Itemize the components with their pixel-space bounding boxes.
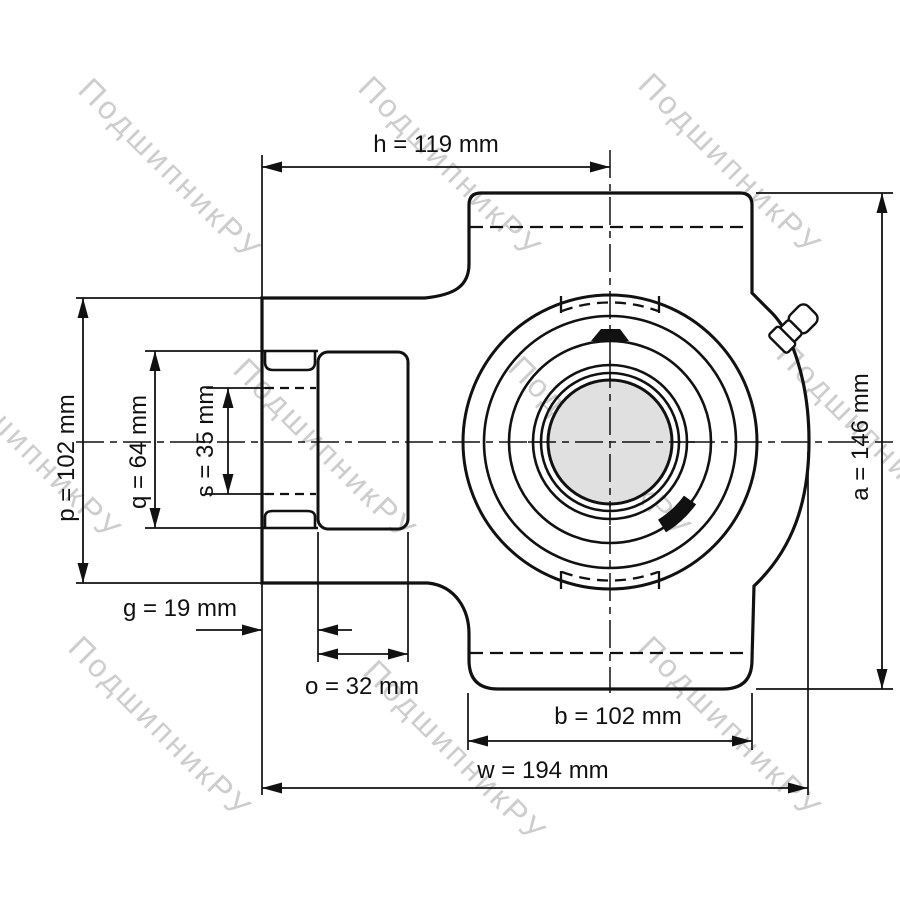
dim-label-b: b = 102 mm (554, 703, 681, 730)
locating-slot-detail (591, 329, 629, 341)
dim-label-p: p = 102 mm (53, 394, 80, 521)
dim-label-s: s = 35 mm (192, 385, 219, 498)
dim-label-o: o = 32 mm (305, 673, 419, 700)
lower-step-notch (265, 511, 315, 528)
set-screw-detail (662, 500, 690, 526)
grease-fitting-icon (768, 301, 821, 354)
housing-outline (262, 193, 809, 689)
dim-label-q: q = 64 mm (125, 395, 152, 509)
dim-label-g: g = 19 mm (123, 595, 237, 622)
guide-block (318, 352, 408, 529)
dim-label-a: a = 146 mm (847, 373, 874, 500)
dim-label-h: h = 119 mm (373, 131, 499, 158)
drawing-canvas: ПодшипникРУ ПодшипникРУ ПодшипникРУ Подш… (0, 0, 900, 900)
take-up-arm-details (262, 351, 408, 529)
dim-label-w: w = 194 mm (476, 757, 608, 784)
hidden-lines (265, 227, 748, 653)
upper-step-notch (265, 351, 315, 370)
technical-drawing: h = 119 mm p = 102 mm q = 64 mm s = 35 m… (0, 0, 900, 900)
